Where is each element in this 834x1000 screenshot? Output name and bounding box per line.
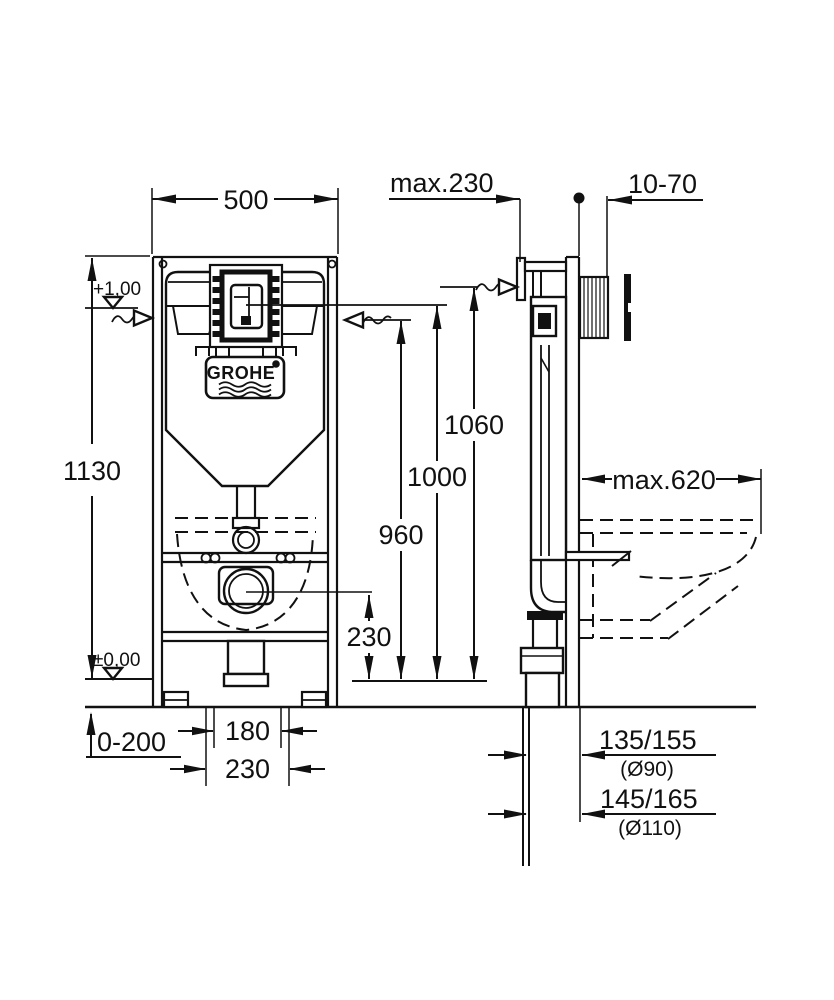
- flush-bend-side: [521, 560, 566, 866]
- dim-label-max-620: max.620: [612, 465, 716, 495]
- support-rail: [162, 553, 328, 563]
- dim-500: 500: [152, 185, 338, 254]
- brand-logo: GROHE: [206, 357, 284, 398]
- dim-label-max-230: max.230: [390, 168, 494, 198]
- dim-0-200: 0-200: [86, 712, 181, 757]
- registered-mark-icon: [272, 360, 280, 368]
- flush-pipe-front: [233, 486, 259, 553]
- installation-drawing: GROHE: [0, 0, 834, 1000]
- dim-label-dia-90: (Ø90): [620, 758, 674, 781]
- wc-bowl-side-hidden: [580, 520, 756, 639]
- dim-label-960: 960: [378, 520, 423, 550]
- front-view: GROHE: [153, 257, 447, 707]
- wall-finish-section: [580, 277, 608, 338]
- level-marker-icon: [104, 668, 122, 679]
- frame-rail-side: [566, 257, 579, 707]
- cistern-side: [531, 297, 566, 560]
- dim-max-230: max.230: [389, 168, 520, 262]
- frame-front-reference: [574, 193, 585, 257]
- brand-logo-text: GROHE: [207, 363, 276, 383]
- installation-drawing-page: GROHE: [0, 0, 834, 1000]
- fixing-rod: [566, 551, 631, 566]
- level-marker-icon: [104, 297, 122, 308]
- level-mark-floor: ±0,00: [93, 650, 140, 679]
- flush-plate-box: [196, 265, 296, 356]
- break-symbol-side: [440, 280, 517, 295]
- dim-max-620: max.620: [582, 465, 761, 534]
- dim-label-230-horizontal: 230: [225, 754, 270, 784]
- dim-label-1130: 1130: [63, 456, 121, 486]
- reference-dot: [574, 193, 585, 204]
- dim-label-180: 180: [225, 716, 270, 746]
- dim-label-230-vertical: 230: [346, 622, 391, 652]
- dim-label-135-155: 135/155: [599, 725, 697, 755]
- dim-label-1000: 1000: [407, 462, 467, 492]
- frame-lower: [162, 632, 328, 707]
- break-arrow-icon: [345, 313, 363, 328]
- dim-230-vertical: 230: [346, 595, 391, 679]
- frame-screw-icon: [329, 261, 336, 268]
- drain-socket-front: [219, 567, 372, 613]
- dim-label-10-70: 10-70: [628, 169, 697, 199]
- dim-label-dia-110: (Ø110): [618, 817, 682, 840]
- flush-plate-side: [624, 274, 631, 341]
- dim-1000: 1000: [407, 306, 467, 679]
- dim-label-500: 500: [223, 185, 268, 215]
- inlet-valve-icon: [538, 313, 551, 329]
- wall-bracket: [517, 258, 566, 300]
- dim-label-0-200: 0-200: [97, 727, 166, 757]
- break-arrow-icon: [499, 280, 517, 295]
- break-arrow-icon: [134, 311, 152, 326]
- break-symbol-left: [112, 311, 152, 326]
- dim-label-1060: 1060: [444, 410, 504, 440]
- dim-10-70: 10-70: [607, 169, 703, 277]
- level-mark-upper: +1,00: [85, 279, 141, 308]
- dim-180: 180: [178, 708, 317, 748]
- dim-label-145-165: 145/165: [600, 784, 698, 814]
